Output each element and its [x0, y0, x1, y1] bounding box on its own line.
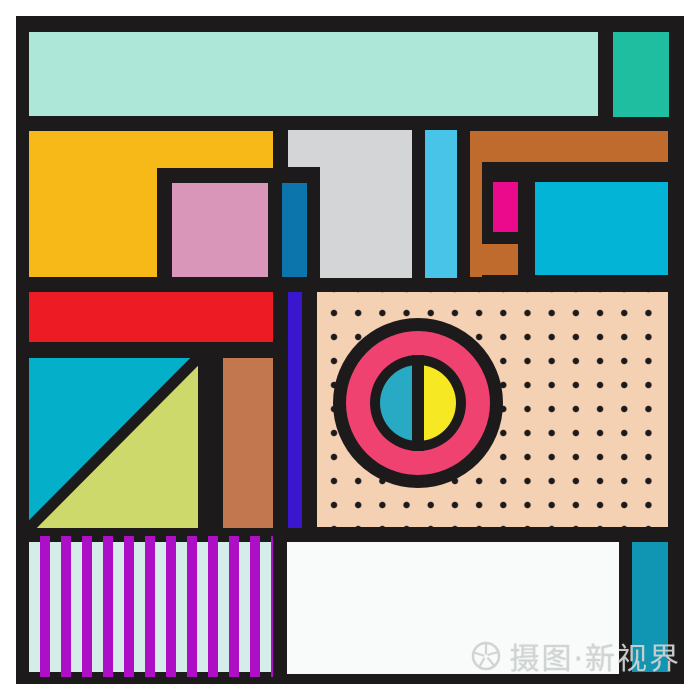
white-panel: [287, 542, 619, 674]
mint-bar: [29, 32, 598, 116]
teal-bar: [632, 542, 668, 672]
skyblue-bar: [425, 130, 457, 278]
red-bar: [29, 292, 273, 342]
cyan-rect: [535, 182, 668, 275]
target-circle: [333, 318, 503, 488]
brown-foot: [470, 244, 518, 275]
diagonal-square-svg: [29, 358, 198, 528]
blue-bar: [282, 183, 307, 277]
brown-top-bar: [470, 131, 668, 162]
diagonal-square: [29, 358, 198, 528]
magenta-rect: [493, 182, 518, 232]
target-center-bar: [412, 355, 424, 451]
salmon-rect: [223, 358, 273, 528]
violet-bar: [288, 292, 302, 528]
yellow-block-left: [29, 131, 157, 277]
pink-square: [172, 183, 268, 277]
gray-block-main: [320, 130, 412, 278]
stripe-panel-stripes: [29, 536, 273, 677]
page: { "artwork": { "description": "abstract-…: [0, 0, 700, 700]
artwork: [16, 16, 684, 684]
green-block: [613, 32, 669, 117]
